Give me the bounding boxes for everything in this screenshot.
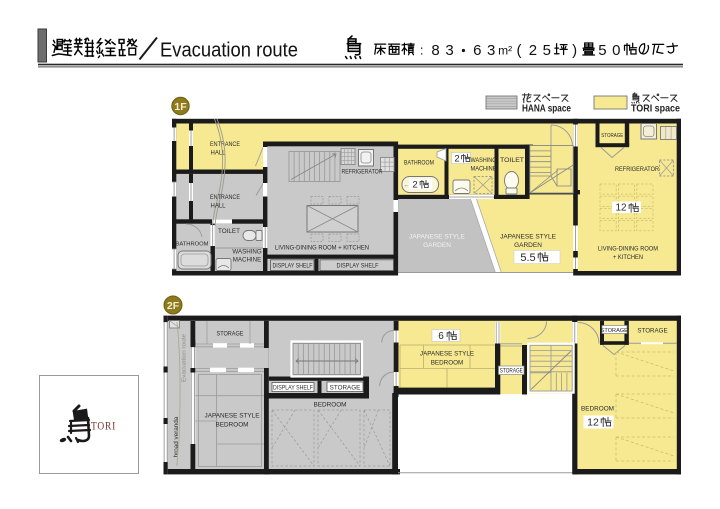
svg-text:JAPANESE STYLE: JAPANESE STYLE — [500, 234, 557, 241]
svg-text:BATHROOM: BATHROOM — [175, 242, 208, 248]
svg-text:DISPLAY SHELF: DISPLAY SHELF — [273, 262, 313, 269]
svg-text:GARDEN: GARDEN — [514, 242, 542, 249]
svg-text:3: 3 — [487, 42, 495, 59]
svg-text:LIVING-DINING ROOM + KITCHEN: LIVING-DINING ROOM + KITCHEN — [275, 245, 369, 252]
svg-text:REFRIGERATOR: REFRIGERATOR — [615, 166, 659, 173]
svg-text:BATHROOM: BATHROOM — [404, 160, 434, 167]
svg-text::: : — [420, 43, 424, 58]
svg-text:ENTRANCE: ENTRANCE — [210, 194, 240, 201]
svg-text:Evacuation route: Evacuation route — [160, 40, 298, 62]
svg-text:STORAGE: STORAGE — [637, 328, 667, 335]
svg-text:2F: 2F — [167, 300, 180, 312]
svg-text:LIVING-DINING ROOM: LIVING-DINING ROOM — [598, 246, 658, 253]
svg-text:1F: 1F — [174, 101, 187, 113]
svg-text:12: 12 — [587, 417, 599, 429]
svg-text:m²: m² — [498, 44, 512, 58]
svg-text:HALL: HALL — [211, 150, 226, 157]
svg-text:2: 2 — [454, 154, 459, 165]
svg-text:STORAGE: STORAGE — [330, 385, 361, 392]
svg-text:TOILET: TOILET — [218, 228, 240, 235]
svg-text:MACHINE: MACHINE — [233, 257, 262, 264]
svg-text:JAPANESE STYLE: JAPANESE STYLE — [420, 351, 474, 358]
svg-text:5: 5 — [598, 42, 606, 59]
svg-text:DISPLAY SHELF: DISPLAY SHELF — [273, 385, 313, 392]
svg-text:TOILET: TOILET — [500, 157, 524, 164]
svg-text:HALL: HALL — [211, 203, 226, 210]
svg-text:WASHING: WASHING — [232, 249, 262, 256]
svg-text:BEDROOM: BEDROOM — [313, 402, 346, 409]
svg-text:STORAGE: STORAGE — [601, 133, 623, 139]
svg-text:MACHINE: MACHINE — [471, 166, 497, 173]
svg-text:5.5: 5.5 — [520, 252, 535, 264]
svg-text:GARDEN: GARDEN — [423, 242, 451, 249]
svg-text:8: 8 — [431, 42, 439, 59]
svg-text:WASHING: WASHING — [471, 157, 497, 164]
svg-text:0: 0 — [612, 42, 620, 59]
svg-text:): ) — [572, 42, 577, 59]
svg-text:Evacuation route: Evacuation route — [182, 334, 188, 382]
svg-text:ENTRANCE: ENTRANCE — [210, 141, 240, 148]
svg-text:←: ← — [403, 182, 410, 189]
svg-text:6: 6 — [473, 42, 481, 59]
svg-text:5: 5 — [543, 42, 551, 59]
svg-text:TORI space: TORI space — [631, 104, 680, 115]
svg-text:HANA space: HANA space — [522, 104, 571, 115]
svg-text:JAPANESE STYLE: JAPANESE STYLE — [205, 413, 260, 420]
svg-text:DISPLAY SHELF: DISPLAY SHELF — [337, 262, 379, 269]
svg-text:3: 3 — [445, 42, 453, 59]
svg-text:STORAGE: STORAGE — [500, 368, 523, 375]
svg-text:2: 2 — [412, 180, 417, 191]
svg-text:BEDROOM: BEDROOM — [431, 360, 464, 367]
svg-text:12: 12 — [615, 203, 627, 214]
svg-text:+ KITCHEN: + KITCHEN — [613, 254, 643, 261]
svg-text:2: 2 — [529, 42, 537, 59]
svg-text:6: 6 — [438, 331, 444, 342]
svg-text:STORAGE: STORAGE — [217, 331, 244, 338]
svg-text:BEDROOM: BEDROOM — [215, 422, 248, 429]
svg-text:JAPANESE STYLE: JAPANESE STYLE — [409, 234, 466, 241]
svg-text:(: ( — [517, 42, 522, 59]
svg-text:STORAGE: STORAGE — [601, 328, 629, 334]
svg-text:TORI: TORI — [91, 419, 116, 433]
svg-text:REFRIGERATOR: REFRIGERATOR — [342, 169, 383, 176]
svg-text:BEDROOM: BEDROOM — [581, 406, 614, 413]
